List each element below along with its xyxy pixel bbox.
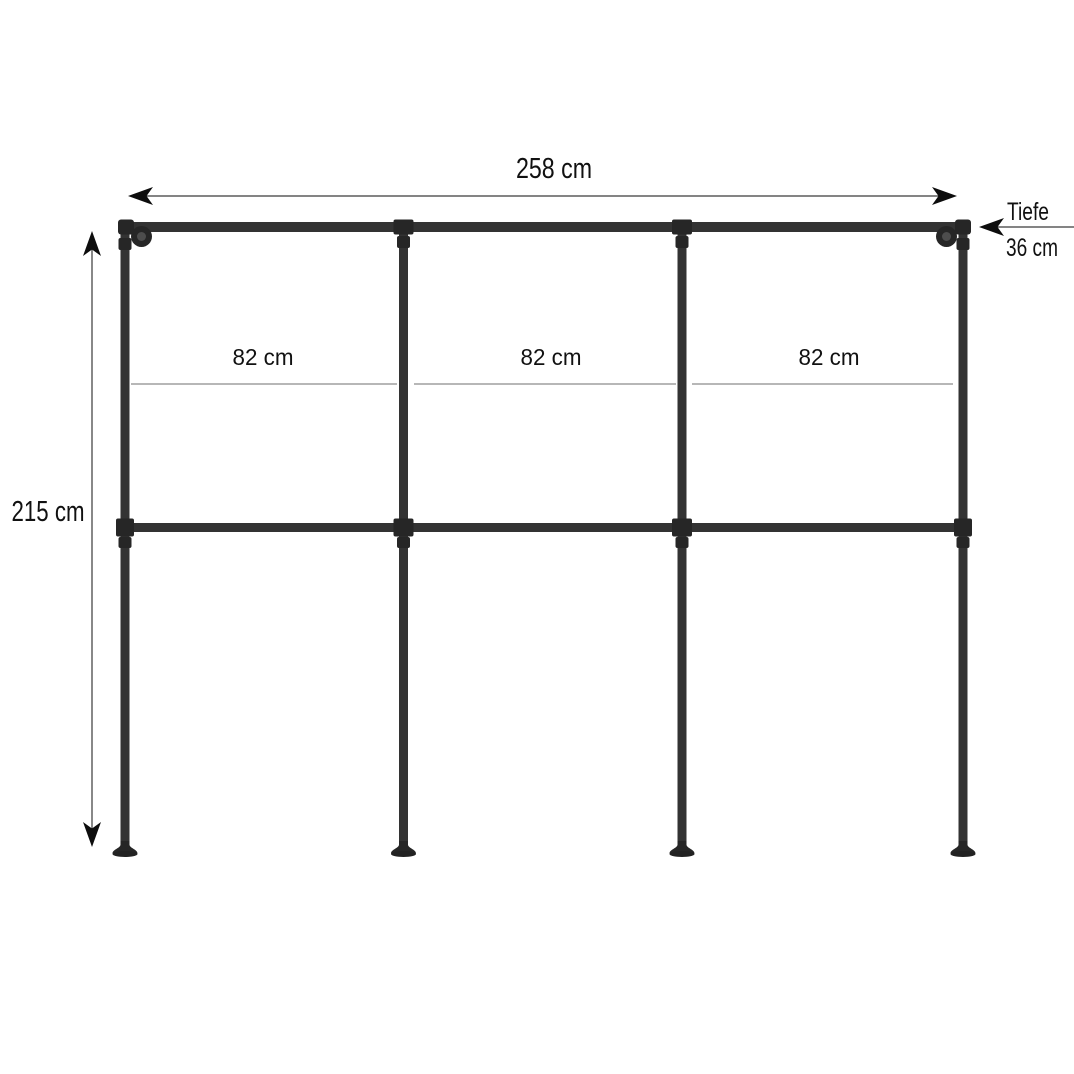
coupling-top-3 <box>676 236 689 248</box>
pipe-rack-dimension-diagram: 258 cm 215 cm Tiefe 36 cm 82 cm 82 cm 82… <box>0 0 1074 1074</box>
foot-base-1 <box>113 851 138 857</box>
dimension-arrowheads <box>83 187 1004 847</box>
height-dimension-label: 215 cm <box>12 496 85 528</box>
coupling-mid-1 <box>119 537 132 548</box>
rack-fittings <box>113 220 976 854</box>
pipe-middle-rail <box>121 523 968 532</box>
depth-dimension-title: Tiefe <box>1007 198 1049 226</box>
cross-mid-3 <box>672 519 692 537</box>
wall-disc-highlights <box>137 232 951 241</box>
cross-mid-2 <box>394 519 414 537</box>
section-width-label-3: 82 cm <box>799 344 860 370</box>
elbow-top-left <box>118 220 134 235</box>
tee-top-3 <box>672 220 692 235</box>
tee-mid-4 <box>954 519 972 537</box>
coupling-top-2 <box>397 236 410 248</box>
depth-dimension-value: 36 cm <box>1006 234 1058 262</box>
dimension-labels: 258 cm 215 cm Tiefe 36 cm 82 cm 82 cm 82… <box>12 153 1059 528</box>
coupling-top-4 <box>957 238 970 250</box>
rack-pipes <box>118 222 969 845</box>
coupling-mid-2 <box>397 537 410 548</box>
coupling-mid-4 <box>957 537 970 548</box>
feet-bases <box>113 851 976 857</box>
wall-flange-hub-left <box>137 232 146 241</box>
dimension-lines <box>92 196 1074 836</box>
elbow-top-right <box>955 220 971 235</box>
coupling-mid-3 <box>676 537 689 548</box>
foot-base-2 <box>391 851 416 857</box>
wall-flange-hub-right <box>942 232 951 241</box>
width-dimension-label: 258 cm <box>516 153 592 185</box>
tee-top-2 <box>394 220 414 235</box>
pipe-top-rail <box>118 222 969 232</box>
section-width-label-1: 82 cm <box>233 344 294 370</box>
foot-base-4 <box>951 851 976 857</box>
coupling-top-1 <box>119 238 132 250</box>
section-width-label-2: 82 cm <box>521 344 582 370</box>
foot-base-3 <box>670 851 695 857</box>
tee-mid-1 <box>116 519 134 537</box>
